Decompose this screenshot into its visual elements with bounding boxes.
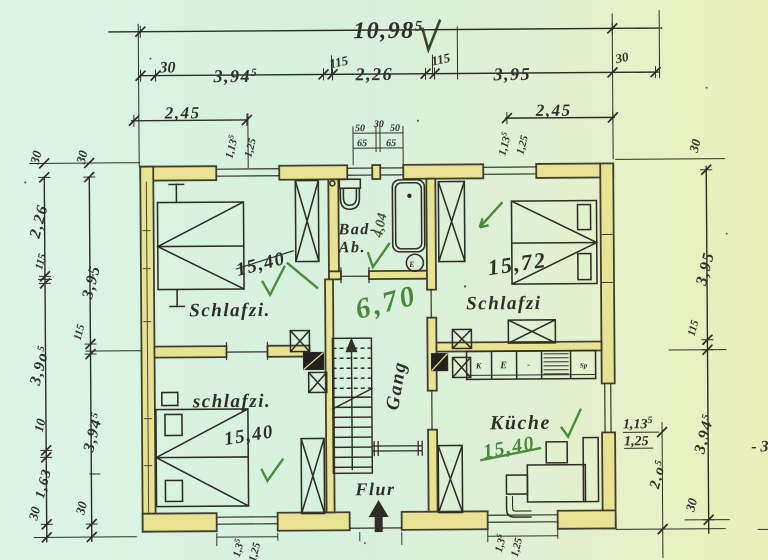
svg-text:2,45: 2,45 <box>535 101 572 120</box>
svg-text:65: 65 <box>386 138 396 149</box>
svg-text:30: 30 <box>373 119 384 130</box>
svg-text:Sp: Sp <box>580 362 588 370</box>
svg-text:E: E <box>408 260 414 269</box>
svg-text:3,95: 3,95 <box>492 64 531 84</box>
svg-text:K: K <box>475 361 482 370</box>
svg-text:2,45: 2,45 <box>164 103 201 122</box>
svg-text:Flur: Flur <box>354 479 395 499</box>
svg-text:2,26: 2,26 <box>354 64 393 84</box>
svg-text:1,25: 1,25 <box>624 434 649 449</box>
svg-text:65: 65 <box>357 138 367 149</box>
svg-text:-: - <box>527 360 530 369</box>
svg-text:50: 50 <box>390 123 400 134</box>
svg-text:30: 30 <box>158 59 175 76</box>
svg-text:Küche: Küche <box>489 412 551 434</box>
svg-text:50: 50 <box>355 123 365 134</box>
svg-text:10,985: 10,985 <box>353 18 424 44</box>
svg-text:Schlafzi.: Schlafzi. <box>189 300 271 322</box>
svg-text:Schlafzi: Schlafzi <box>466 293 542 315</box>
svg-text:Ab.: Ab. <box>338 239 366 256</box>
svg-text:E: E <box>499 360 507 371</box>
svg-text:schlafzi.: schlafzi. <box>192 391 272 413</box>
svg-text:- 3: - 3 <box>751 438 768 455</box>
